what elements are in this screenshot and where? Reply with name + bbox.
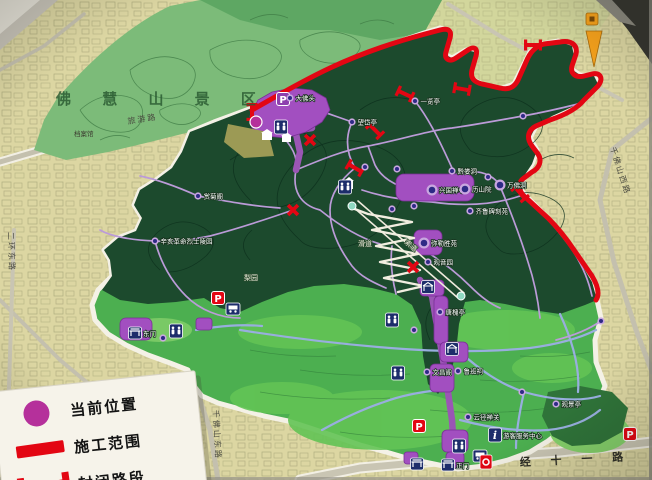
map-canvas: PPPPi游客服务中心东门正门 大佛头望岱亭一览亭黔娄洞兴国禅寺历山院万佛洞齐鲁… xyxy=(0,0,652,480)
park-map-photo: PPPPi游客服务中心东门正门 大佛头望岱亭一览亭黔娄洞兴国禅寺历山院万佛洞齐鲁… xyxy=(0,0,652,480)
